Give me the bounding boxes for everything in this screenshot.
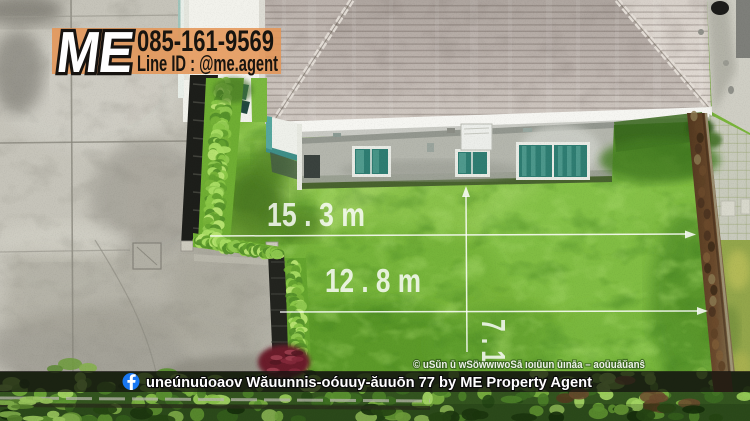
svg-text:uneúnuūoaov Wăuunnis-oóuuy-ăuu: uneúnuūoaov Wăuunnis-oóuuy-ăuuōn 77 by M… [146,374,592,391]
svg-text:Line ID : @me.agent: Line ID : @me.agent [137,51,278,76]
svg-text:7 . 1: 7 . 1 [475,319,512,363]
svg-text:ME: ME [53,20,136,85]
svg-text:© uSŭn ū wSöwwıwoSā ıoıūun ūın: © uSŭn ū wSöwwıwoSā ıoıūun ūınāa – aoūuā… [413,359,645,371]
svg-text:12 . 8 m: 12 . 8 m [325,262,421,299]
svg-text:15 . 3 m: 15 . 3 m [267,196,365,233]
